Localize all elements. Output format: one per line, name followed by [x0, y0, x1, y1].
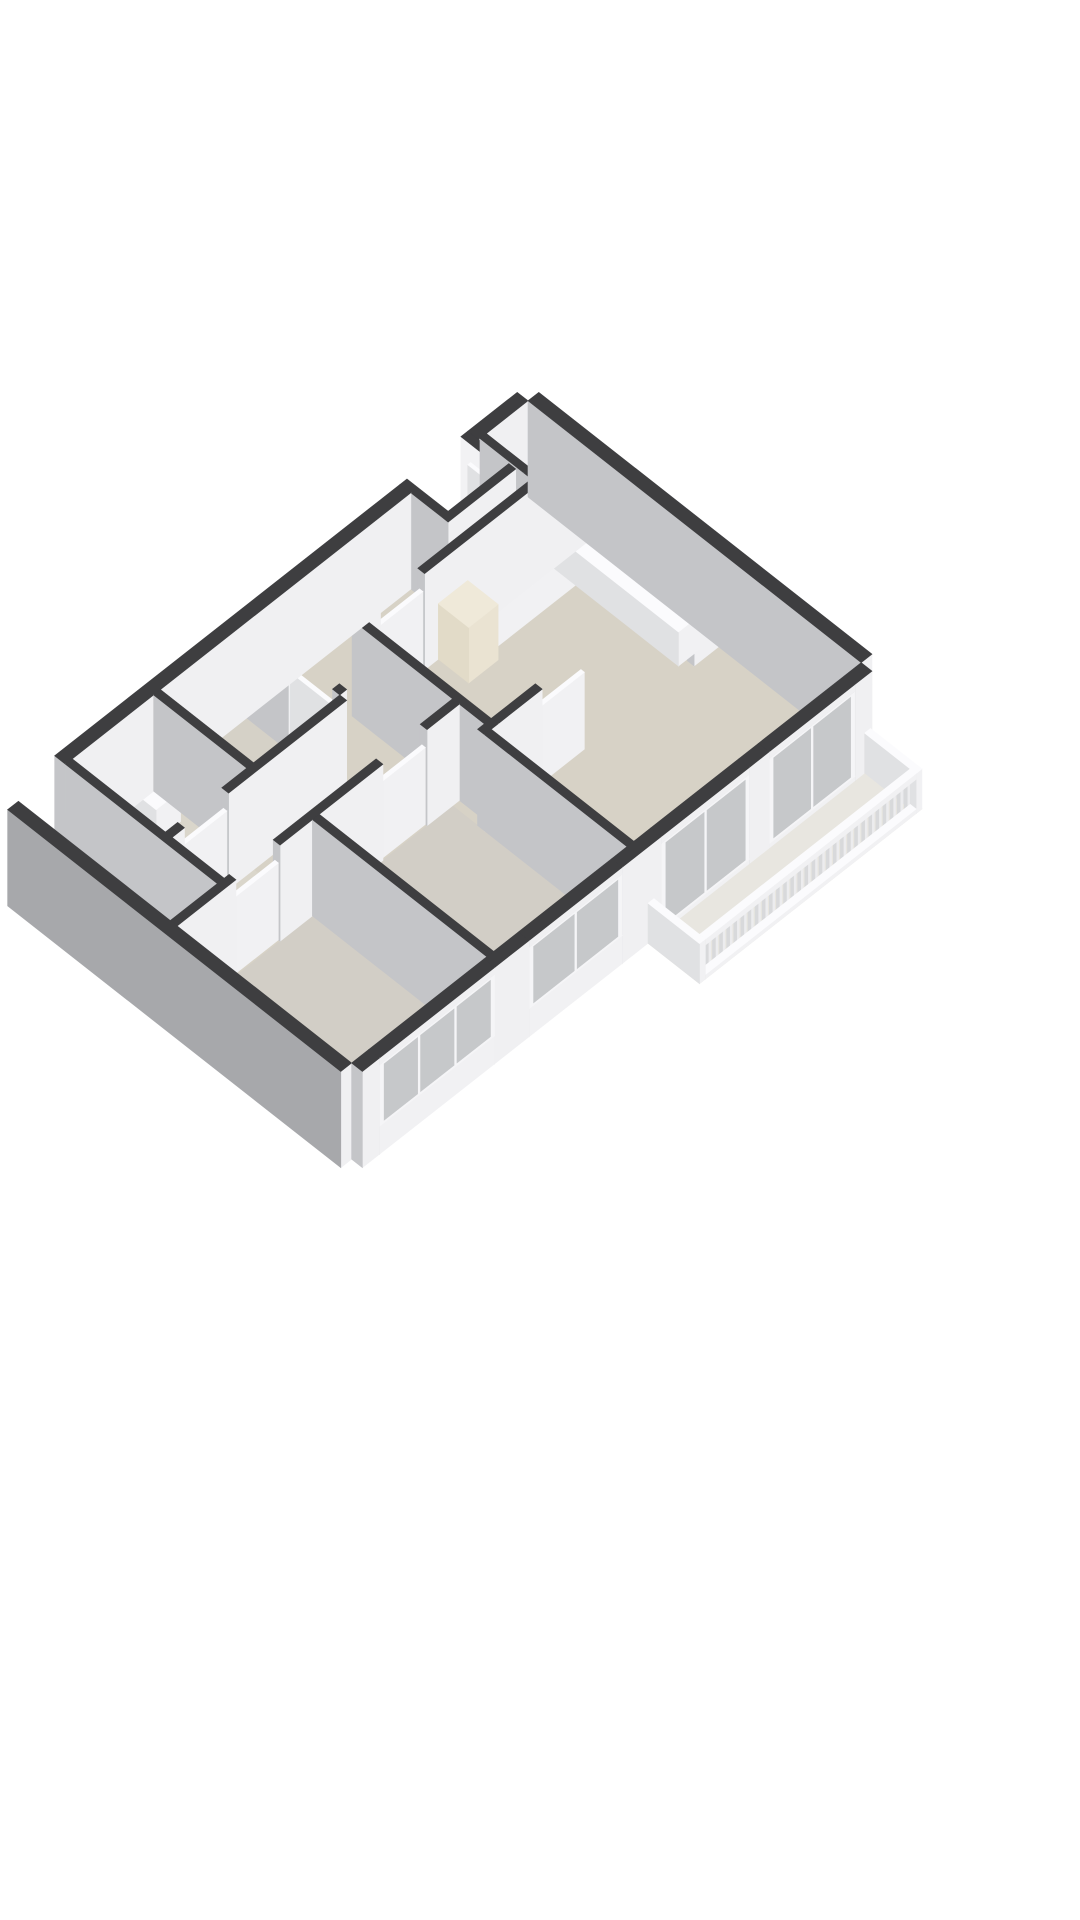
floorplan-svg [0, 0, 1080, 1920]
wall-ext-se-stub-5 [352, 1050, 380, 1168]
floorplan-3d-render [0, 0, 1080, 1920]
